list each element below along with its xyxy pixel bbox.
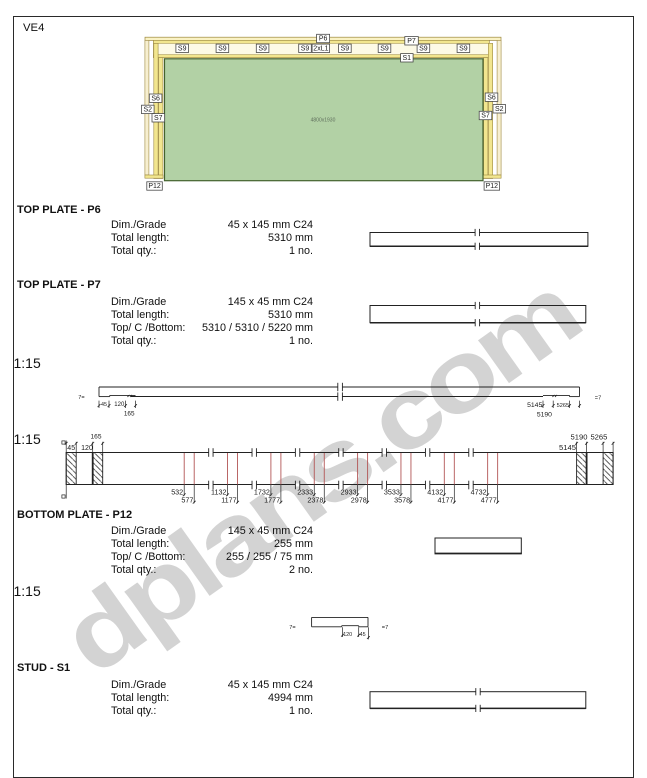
svg-text:2378: 2378	[307, 495, 323, 504]
svg-text:7=: 7=	[289, 625, 295, 631]
svg-text:S9: S9	[459, 46, 468, 53]
svg-text:2xL1: 2xL1	[313, 46, 328, 53]
svg-text:5145: 5145	[527, 402, 542, 409]
svg-text:S7: S7	[481, 113, 490, 120]
svg-text:S9: S9	[301, 46, 310, 53]
svg-text:S6: S6	[487, 94, 496, 101]
svg-text:5190: 5190	[571, 433, 588, 442]
svg-text:5145: 5145	[559, 443, 576, 452]
svg-text:165: 165	[124, 410, 135, 417]
svg-text:4777: 4777	[481, 495, 497, 504]
svg-text:=7: =7	[382, 625, 388, 631]
svg-text:5265: 5265	[590, 433, 607, 442]
svg-text:45: 45	[101, 402, 107, 408]
svg-text:3578: 3578	[394, 495, 410, 504]
svg-text:S6: S6	[151, 95, 160, 102]
svg-text:577: 577	[181, 495, 193, 504]
svg-text:S9: S9	[258, 46, 267, 53]
svg-text:S9: S9	[178, 46, 187, 53]
svg-text:5190: 5190	[537, 412, 552, 419]
svg-text:S1: S1	[403, 55, 412, 62]
svg-text:P12: P12	[148, 183, 161, 190]
svg-text:1177: 1177	[221, 495, 236, 504]
svg-text:S2: S2	[495, 106, 504, 113]
svg-text:P7: P7	[407, 38, 416, 45]
svg-text:S9: S9	[380, 46, 389, 53]
svg-text:7=: 7=	[78, 395, 84, 401]
svg-text:165: 165	[90, 434, 101, 441]
svg-text:2978: 2978	[351, 495, 367, 504]
svg-text:4800x1930: 4800x1930	[311, 117, 336, 123]
svg-text:45: 45	[67, 445, 75, 452]
svg-text:S9: S9	[218, 46, 227, 53]
svg-text:4177: 4177	[438, 495, 454, 504]
svg-text:5265: 5265	[557, 403, 569, 409]
svg-text:S9: S9	[419, 46, 428, 53]
svg-text:120: 120	[81, 445, 93, 452]
svg-text:S7: S7	[154, 115, 163, 122]
svg-text:S9: S9	[341, 46, 350, 53]
svg-text:120: 120	[114, 402, 125, 408]
svg-text:120: 120	[343, 632, 352, 638]
svg-text:P12: P12	[486, 183, 499, 190]
svg-text:P6: P6	[319, 36, 328, 43]
svg-text:S2: S2	[144, 107, 153, 114]
svg-text:1777: 1777	[264, 495, 280, 504]
svg-text:=7: =7	[595, 395, 601, 401]
svg-text:45: 45	[360, 632, 366, 638]
